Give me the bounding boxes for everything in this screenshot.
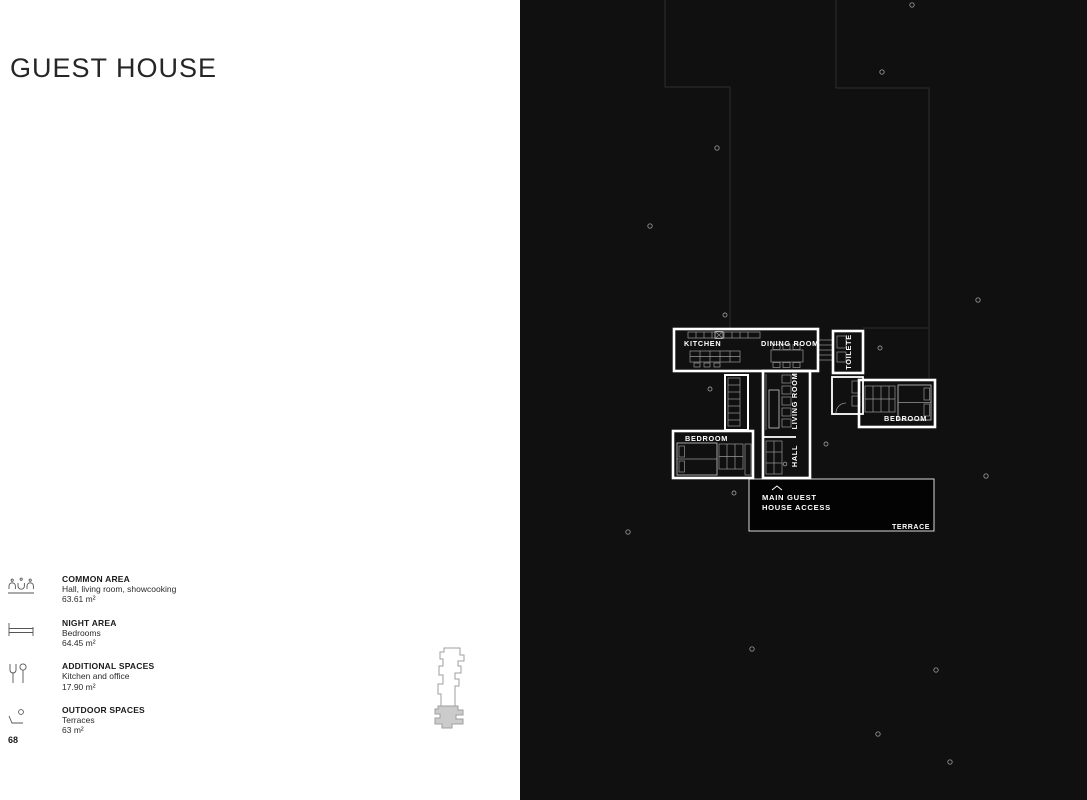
legend-description: Hall, living room, showcooking: [62, 584, 176, 594]
room-labels: KITCHEN DINING ROOM TOILETE LIVING ROOM …: [684, 334, 927, 467]
masterplan-key-diagram: [428, 644, 480, 756]
legend-area: 63 m²: [62, 725, 145, 735]
room-label-terrace: TERRACE: [892, 524, 930, 531]
legend-description: Terraces: [62, 715, 145, 725]
legend-description: Bedrooms: [62, 628, 117, 638]
room-label-bedroom-left: BEDROOM: [685, 434, 728, 443]
room-label-living-room: LIVING ROOM: [790, 373, 799, 430]
left-page: GUEST HOUSE COMMON AREA Hall, living roo…: [0, 0, 520, 800]
legend-area: 64.45 m²: [62, 638, 117, 648]
plan-walls: [673, 329, 935, 478]
legend: COMMON AREA Hall, living room, showcooki…: [6, 574, 326, 748]
access-label-line2: HOUSE ACCESS: [762, 503, 831, 512]
room-label-hall: HALL: [790, 445, 799, 467]
page-number: 68: [8, 735, 18, 745]
right-page: MAIN GUEST HOUSE ACCESS TERRACE: [520, 0, 1087, 800]
room-label-dining-room: DINING ROOM: [761, 339, 819, 348]
legend-label: ADDITIONAL SPACES: [62, 661, 154, 671]
floor-plan-drawing: MAIN GUEST HOUSE ACCESS TERRACE: [520, 0, 1087, 800]
legend-label: OUTDOOR SPACES: [62, 705, 145, 715]
brochure-spread: GUEST HOUSE COMMON AREA Hall, living roo…: [0, 0, 1087, 800]
guest-house-highlight: [435, 706, 463, 728]
site-boundary-lines: [665, 0, 929, 378]
legend-area: 63.61 m²: [62, 594, 176, 604]
people-at-table-icon: [6, 574, 62, 605]
legend-description: Kitchen and office: [62, 671, 154, 681]
room-label-bedroom-right: BEDROOM: [884, 414, 927, 423]
access-label-line1: MAIN GUEST: [762, 493, 817, 502]
cutlery-icon: [6, 661, 62, 692]
legend-item-night-area: NIGHT AREA Bedrooms 64.45 m²: [6, 618, 326, 649]
legend-item-outdoor-spaces: OUTDOOR SPACES Terraces 63 m²: [6, 705, 326, 736]
room-label-kitchen: KITCHEN: [684, 339, 721, 348]
legend-area: 17.90 m²: [62, 682, 154, 692]
terrace-panel: MAIN GUEST HOUSE ACCESS TERRACE: [749, 479, 934, 531]
page-title: GUEST HOUSE: [10, 53, 217, 84]
terrace-lounger-icon: [6, 705, 62, 736]
room-label-toilete: TOILETE: [844, 334, 853, 370]
bed-icon: [6, 618, 62, 649]
legend-item-additional-spaces: ADDITIONAL SPACES Kitchen and office 17.…: [6, 661, 326, 692]
legend-label: COMMON AREA: [62, 574, 176, 584]
legend-label: NIGHT AREA: [62, 618, 117, 628]
plan-furniture: [677, 332, 931, 476]
legend-item-common-area: COMMON AREA Hall, living room, showcooki…: [6, 574, 326, 605]
